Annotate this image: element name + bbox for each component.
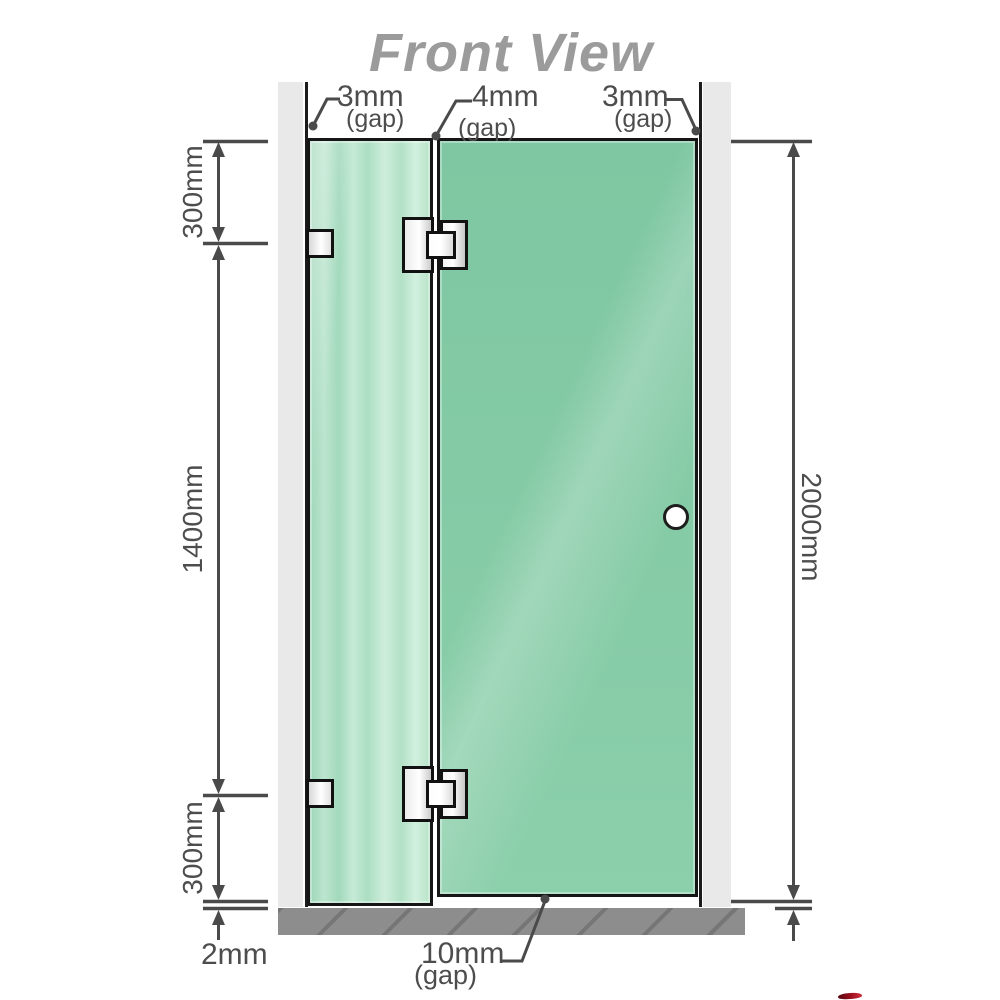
red-corner-mark xyxy=(838,992,862,1000)
lower-hinge-knuckle xyxy=(426,780,456,808)
gap-label-top-right-unit: (gap) xyxy=(614,107,672,132)
gap-label-top-center-unit: (gap) xyxy=(458,116,516,141)
dimension-label-total-2000mm: 2000mm xyxy=(797,473,825,582)
gap-label-bottom-unit: (gap) xyxy=(414,962,477,989)
dimension-label-bottom-300mm: 300mm xyxy=(179,801,207,894)
dimension-label-middle-1400mm: 1400mm xyxy=(179,465,207,574)
gap-label-top-left-unit: (gap) xyxy=(346,107,404,132)
upper-hinge-knuckle xyxy=(426,231,456,259)
dimension-label-top-300mm: 300mm xyxy=(179,145,207,238)
door-glass-panel xyxy=(437,138,698,897)
floor-hatched-base xyxy=(278,908,745,935)
left-wall xyxy=(278,82,303,907)
upper-wall-bracket xyxy=(306,229,334,258)
upper-hinge xyxy=(402,217,468,273)
right-wall-inner-edge xyxy=(699,82,702,907)
dimension-label-floor-gap-2mm: 2mm xyxy=(201,940,268,970)
door-knob xyxy=(663,504,689,530)
gap-label-top-center-value: 4mm xyxy=(472,82,539,112)
lower-hinge xyxy=(402,766,468,822)
lower-wall-bracket xyxy=(306,779,334,808)
right-wall xyxy=(703,82,731,907)
diagram-title: Front View xyxy=(331,26,691,80)
shower-screen-front-view-diagram: Front View xyxy=(0,0,1000,1000)
